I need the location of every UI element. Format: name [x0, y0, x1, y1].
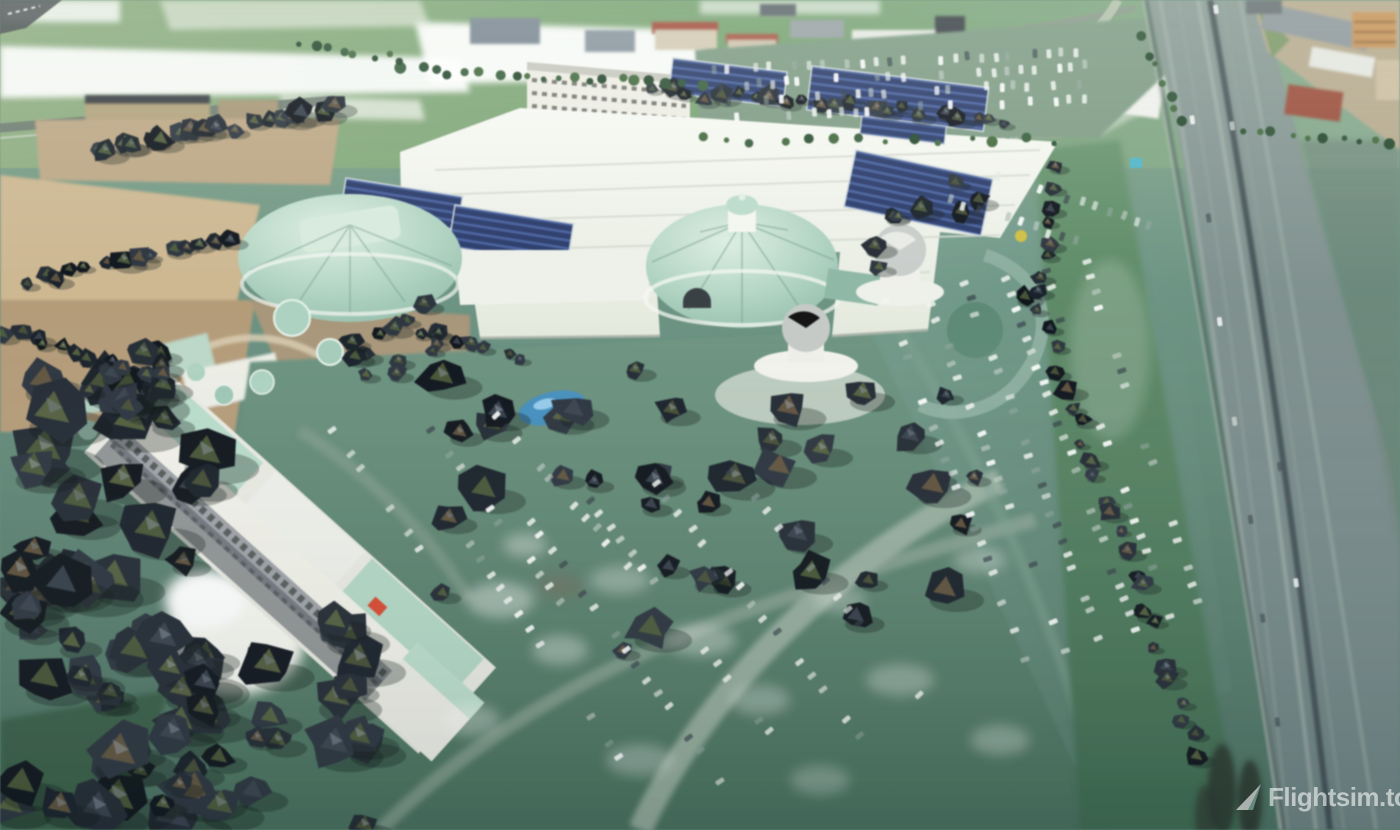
screenshot-root: Flightsim.to [0, 0, 1400, 830]
flightsim-watermark: Flightsim.to [1234, 782, 1400, 812]
haze-overlay [0, 0, 1400, 830]
watermark-label: Flightsim.to [1268, 784, 1400, 810]
aerial-scene [0, 0, 1400, 830]
paper-plane-icon [1234, 782, 1264, 812]
